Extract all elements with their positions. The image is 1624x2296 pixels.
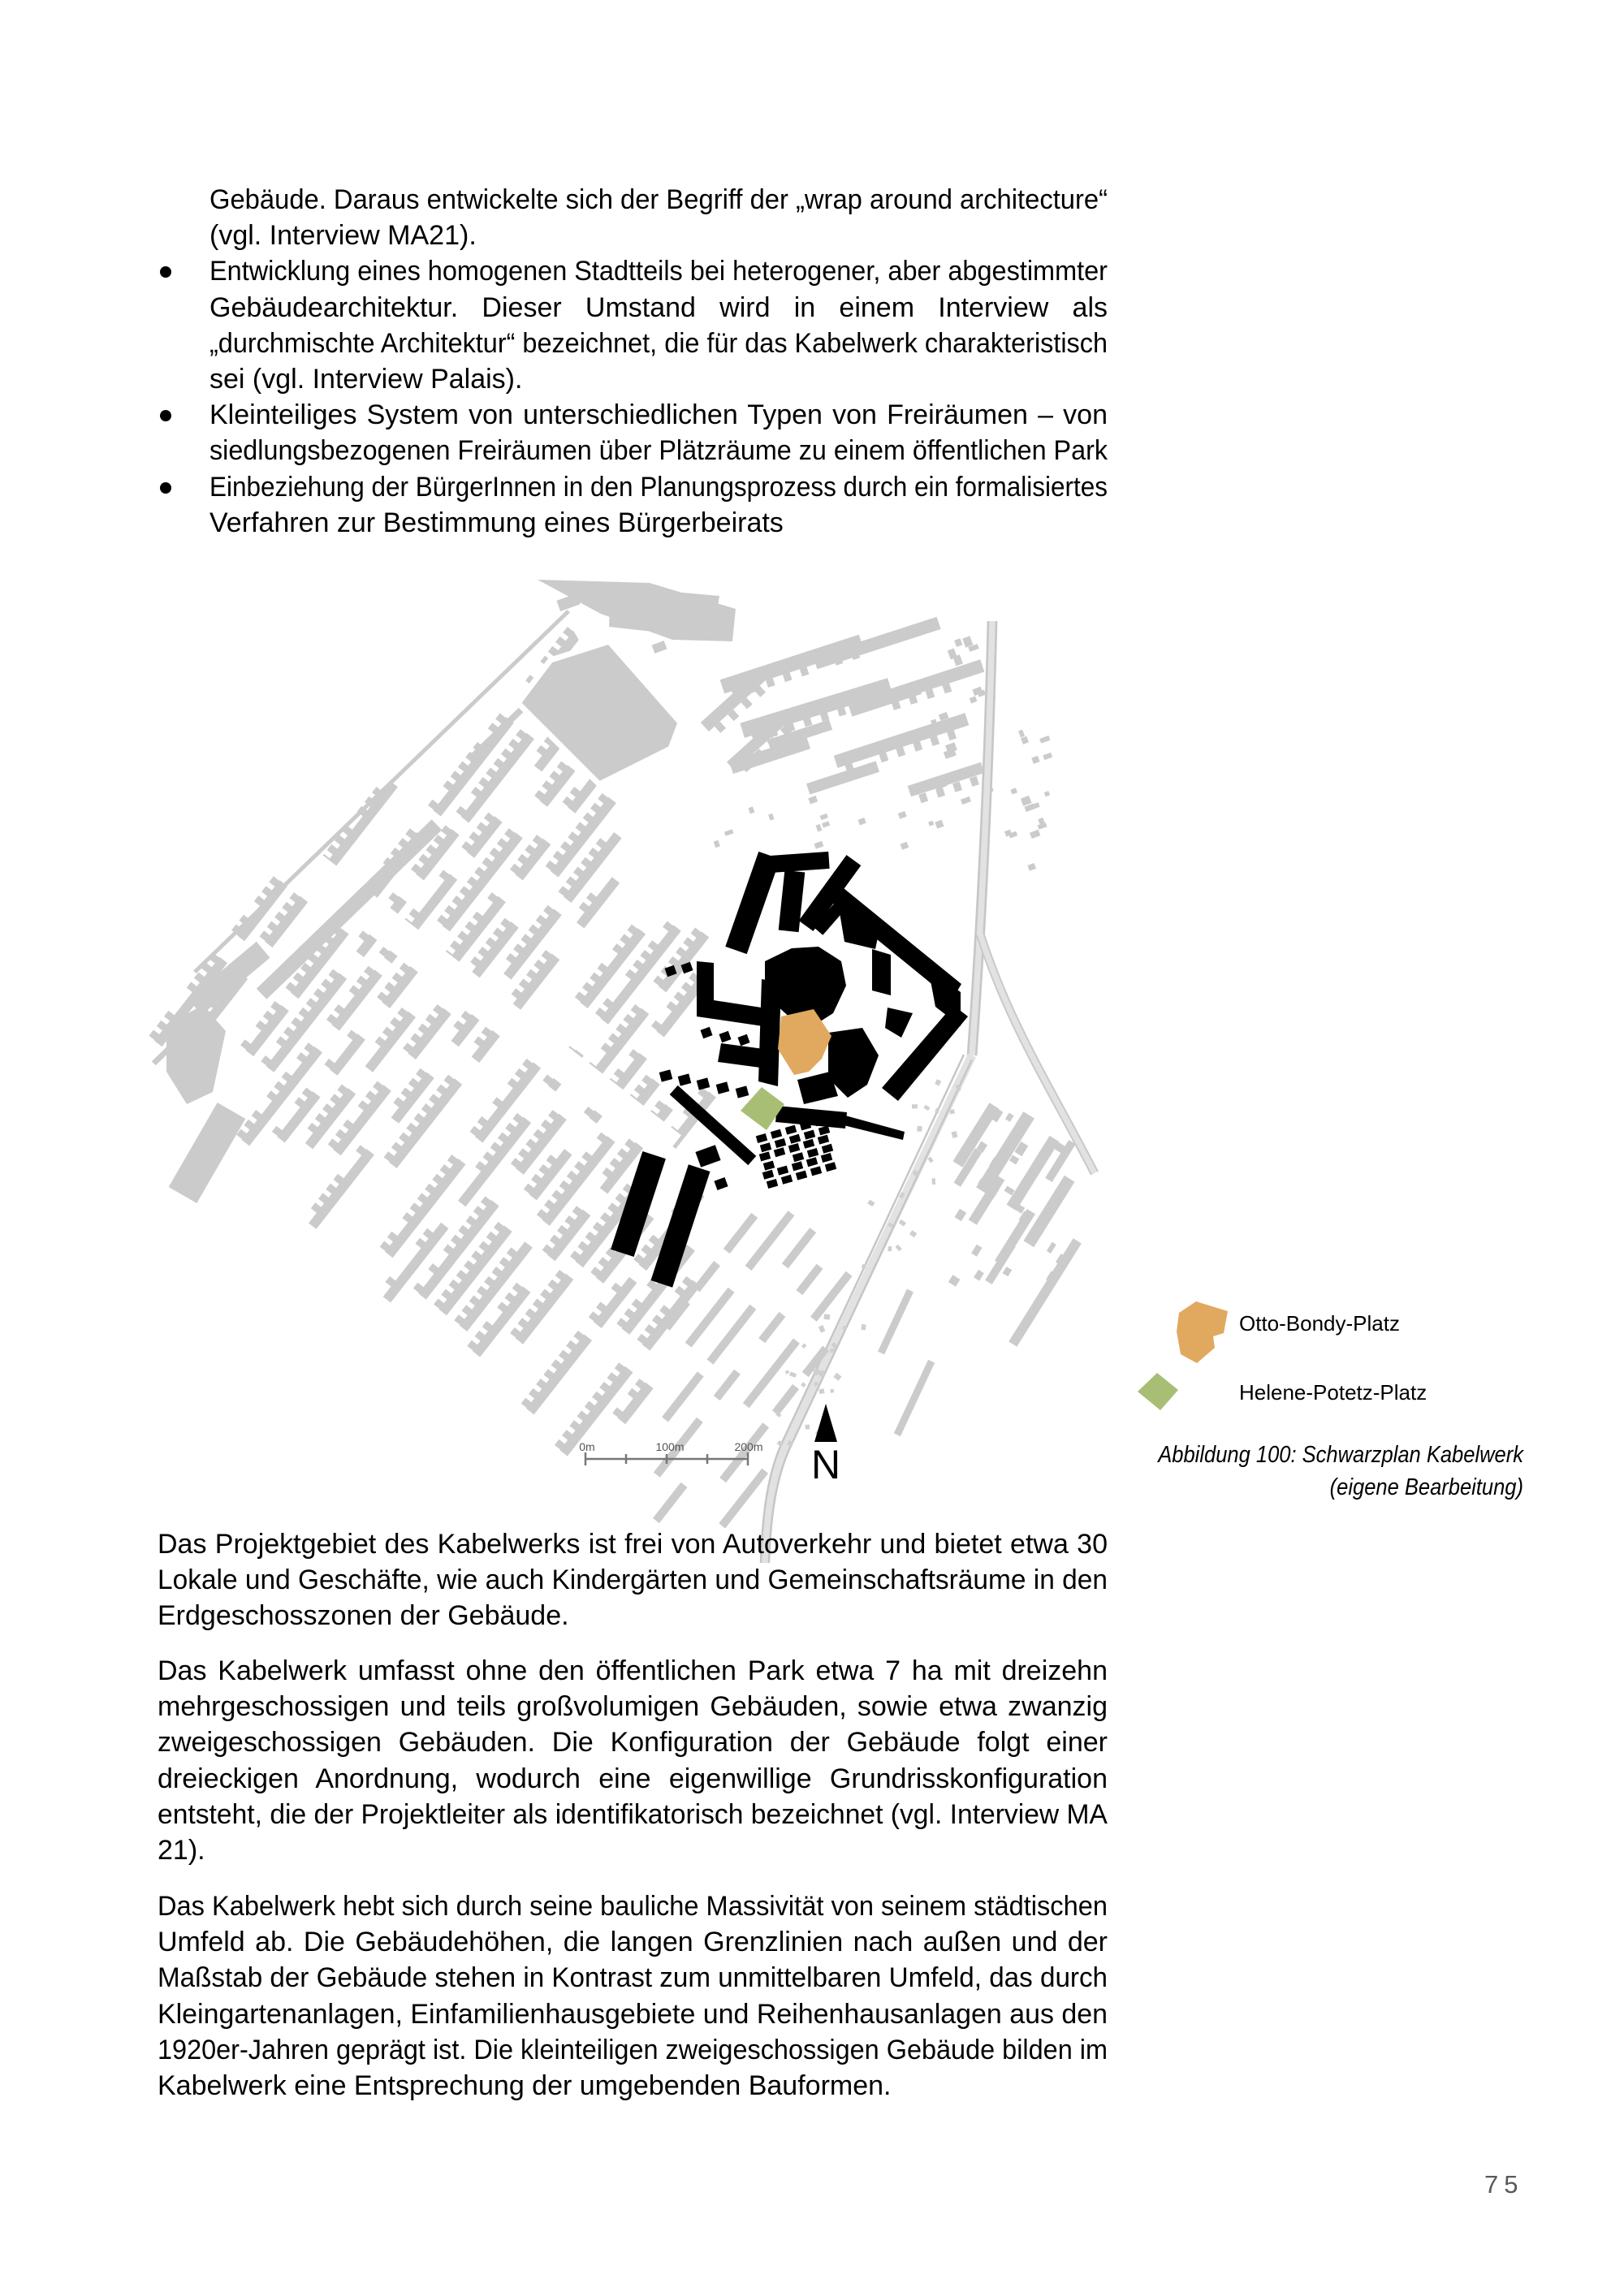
svg-text:200m: 200m (734, 1440, 762, 1453)
svg-text:N: N (811, 1442, 840, 1487)
svg-text:0m: 0m (579, 1440, 594, 1453)
svg-text:100m: 100m (655, 1440, 684, 1453)
